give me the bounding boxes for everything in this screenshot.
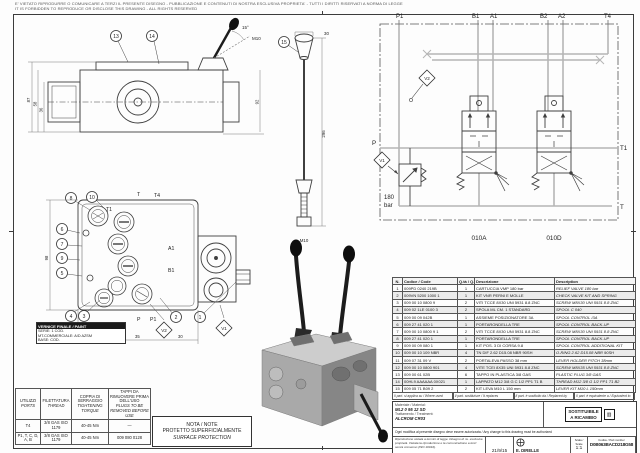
drawing-number: D0B063BACD218G58 bbox=[588, 442, 635, 447]
section-label-010D: 010D bbox=[546, 235, 562, 242]
torque-cell: P1, T, C, D, A, B bbox=[16, 432, 41, 444]
svg-text:8: 8 bbox=[70, 196, 73, 202]
svg-text:V1: V1 bbox=[221, 326, 227, 331]
parts-cell: 1 bbox=[458, 321, 475, 328]
parts-cell: 009PD 0240 219B bbox=[403, 285, 458, 292]
parts-cell: 009 00 10 0800 9 1 bbox=[403, 328, 458, 335]
front-tag-v1: V1 bbox=[216, 320, 232, 336]
parts-cell: KIT LEVA M10 L 150 mm bbox=[475, 385, 555, 392]
parts-table-footer: Il part. si applica su / Where usedIl pa… bbox=[392, 393, 635, 400]
parts-cell: SCREW M8X35 UNI 5931 8.8 ZNC bbox=[555, 364, 636, 371]
parts-cell: 2 bbox=[393, 292, 403, 299]
frame-tick-left bbox=[9, 231, 14, 232]
parts-cell: 11 bbox=[393, 357, 403, 364]
torque-header-thread: FILETTATURATHREAD bbox=[41, 389, 72, 420]
torque-header-row: UTILIZZIPORTS FILETTATURATHREAD COPPIA D… bbox=[16, 389, 151, 420]
parts-cell: SCREW M8X30 UNI 5931 8.8 ZNC bbox=[555, 328, 636, 335]
port-a1: A1 bbox=[490, 14, 498, 20]
scale-value: 1:1 bbox=[571, 446, 587, 451]
pictorial-3d-view bbox=[246, 234, 396, 452]
parts-cell: LEVER HOLDER PITCH 38mm bbox=[555, 357, 636, 364]
parts-cell: 8 bbox=[393, 335, 403, 342]
stamp-line-1: SOSTITUIBILE bbox=[568, 409, 598, 414]
parts-cell: SPOOL C 040 bbox=[555, 306, 636, 313]
parts-cell: THREAD M12 3/8 G 1/2 PP1 T1 B2 bbox=[555, 378, 636, 385]
company-logo-icon bbox=[516, 438, 525, 448]
schematic-gray-buses bbox=[380, 50, 618, 206]
dim-35: 35 bbox=[135, 334, 140, 339]
parts-cell: 4 bbox=[393, 306, 403, 313]
paint-box-line-3: BASE: COD. bbox=[37, 338, 125, 343]
parts-row: 6009 27 41 020 11PORTARONDELLA TRESPOOL … bbox=[393, 321, 636, 328]
spool-section-010A bbox=[457, 96, 509, 191]
svg-text:V1: V1 bbox=[379, 158, 385, 163]
front-port-p: P bbox=[137, 317, 141, 323]
parts-cell: 15 bbox=[393, 385, 403, 392]
paint-note-box: VERNICE FINALE / PAINT SERIE: 1 COD. MT.… bbox=[36, 322, 126, 344]
parts-row: 9009 00 09 080 11KIT POS. 3 DI CORSA 9.8… bbox=[393, 342, 636, 349]
treatment-value: ALCROM CR03 bbox=[395, 416, 541, 421]
balloon-3: 3 bbox=[79, 311, 90, 322]
parts-row: 5009 00 09 042B1ASSIEME POSIZIONATORE 3A… bbox=[393, 313, 636, 320]
parts-cell: 009 00 10 109 NBR bbox=[403, 349, 458, 356]
parts-cell: SPOOL CONTROL ADDITIONAL KIT bbox=[555, 342, 636, 349]
parts-cell: LEVER KIT M10 L 150mm bbox=[555, 385, 636, 392]
svg-text:4: 4 bbox=[70, 314, 73, 320]
note-line-en: SURFACE PROTECTION bbox=[173, 435, 231, 442]
parts-cell: 009 00 09 042B bbox=[403, 313, 458, 320]
parts-cell: 1 bbox=[458, 335, 475, 342]
release-date: 21/9/15 bbox=[486, 437, 514, 453]
parts-cell: 2 bbox=[458, 306, 475, 313]
parts-cell: 5 bbox=[393, 313, 403, 320]
scale-label: Scala / Scale bbox=[571, 438, 587, 446]
parts-row: 4009 02 1LE 0100 32SPOLA ML CM. 1 STANDA… bbox=[393, 306, 636, 313]
balloon-10: 10 bbox=[87, 192, 98, 203]
parts-cell: VITE TCEI 8X35 UNI 5931 8.8 ZNC bbox=[475, 364, 555, 371]
svg-text:7: 7 bbox=[61, 242, 64, 248]
parts-cell: LAPPATO M12 3/8 G C 1/2 PP1 T1 B bbox=[475, 378, 555, 385]
spare-stamp-cell: SOSTITUIBILE A RICAMBIO ▥ bbox=[543, 402, 636, 427]
torque-cell: 40-45 Nm bbox=[72, 432, 109, 444]
svg-text:10: 10 bbox=[89, 195, 95, 201]
parts-footer-cell: Il part. sostituisce / It replaces bbox=[453, 393, 514, 400]
scale-cell: Scala / Scale 1:1 bbox=[571, 437, 588, 453]
parts-cell: 1 bbox=[458, 342, 475, 349]
parts-row: 11009 07 31 09 V2PORTALEVA PASSO 38 mmLE… bbox=[393, 357, 636, 364]
side-thread-label: M10 bbox=[252, 36, 261, 41]
parts-row: 10009 00 10 109 NBR4TN DIF 2.62 D15.08 N… bbox=[393, 349, 636, 356]
property-note: Riproduzione vietata a termini di legge.… bbox=[393, 437, 486, 453]
parts-cell: RELIEF VALVE 180 bar bbox=[555, 285, 636, 292]
dim-58: 58 bbox=[33, 101, 38, 106]
port-torque-table: UTILIZZIPORTS FILETTATURATHREAD COPPIA D… bbox=[15, 388, 151, 445]
parts-cell: 4 bbox=[458, 364, 475, 371]
drawing-number-cell: Codice / Part number D0B063BACD218G58 bbox=[588, 437, 636, 453]
torque-cell: 3/8 GAS ISO 1179 bbox=[41, 420, 72, 432]
parts-row: 13009 00 61 02B6TAPPO IN PLASTICA 3/8 GA… bbox=[393, 371, 636, 378]
parts-cell: 2 bbox=[458, 328, 475, 335]
port-p1: P1 bbox=[396, 14, 404, 20]
parts-cell: 009 00 61 02B bbox=[403, 371, 458, 378]
dim-30: 30 bbox=[324, 31, 329, 36]
relief-unit: bar bbox=[384, 203, 393, 209]
parts-header-desc-it: Descrizione bbox=[475, 278, 555, 285]
torque-row: P1, T, C, D, A, B3/8 GAS ISO 117940-45 N… bbox=[16, 432, 151, 444]
parts-cell: 00HL9 AAAAAA 0X021 bbox=[403, 378, 458, 385]
front-port-b1: B1 bbox=[168, 268, 174, 274]
parts-cell: 10 bbox=[393, 349, 403, 356]
dim-296: 296 bbox=[321, 130, 326, 138]
port-b1: B1 bbox=[472, 14, 480, 20]
balloon-5: 5 bbox=[57, 268, 68, 279]
parts-cell: 009 27 41 020 1 bbox=[403, 335, 458, 342]
parts-cell: KIT POS. 3 DI CORSA 9.8 bbox=[475, 342, 555, 349]
parts-cell: 009VN 5200 1000 1 bbox=[403, 292, 458, 299]
parts-cell: 14 bbox=[393, 378, 403, 385]
parts-cell: 009 00 10 0800 901 bbox=[403, 364, 458, 371]
parts-cell: TN DIF 2.62 D15.08 NBR 90SH bbox=[475, 349, 555, 356]
svg-text:V2: V2 bbox=[161, 328, 167, 333]
port-t1: T1 bbox=[620, 145, 628, 152]
hydraulic-schematic: P1 B1 A1 B2 A2 T4 180 bbox=[372, 8, 634, 252]
balloon-14: 14 bbox=[147, 31, 160, 65]
parts-header-row: N. Codice / Code Q.tà / Q.ty Descrizione… bbox=[393, 278, 636, 285]
torque-cell: — bbox=[109, 420, 151, 432]
parts-cell: 1 bbox=[458, 313, 475, 320]
parts-cell: PLASTIC PLUG 3/8 GAS bbox=[555, 371, 636, 378]
dim-92: 92 bbox=[255, 99, 260, 104]
parts-cell: 2 bbox=[458, 357, 475, 364]
parts-row: 3009 00 10 0800 92VITI TCCE 8X30 UNI 593… bbox=[393, 299, 636, 306]
parts-header-n: N. bbox=[393, 278, 403, 285]
lever-detail-view: 296 30 M10 15 bbox=[274, 30, 336, 248]
parts-cell: 1 bbox=[393, 285, 403, 292]
svg-text:2: 2 bbox=[175, 315, 178, 321]
stamp-line-2: A RICAMBIO bbox=[568, 415, 598, 420]
dim-30: 30 bbox=[178, 334, 183, 339]
material-cell: Materiale / Material: ML2 0 95 12 SD Tra… bbox=[393, 402, 543, 427]
torque-row: T43/8 GAS ISO 117940-45 Nm— bbox=[16, 420, 151, 432]
side-view-outline bbox=[48, 58, 239, 132]
parts-cell: PORTALEVA PASSO 38 mm bbox=[475, 357, 555, 364]
front-port-t1: T1 bbox=[106, 207, 112, 213]
port-a2: A2 bbox=[558, 14, 566, 20]
side-view-lever bbox=[214, 16, 250, 58]
spare-stamp: SOSTITUIBILE A RICAMBIO bbox=[565, 407, 601, 421]
parts-cell: 009 00 09 080 1 bbox=[403, 342, 458, 349]
parts-cell: SCREW M8X30 UNI 5931 8.8 ZNC bbox=[555, 299, 636, 306]
parts-row: 7009 00 10 0800 9 12VITI TCCE 8X30 UNI 5… bbox=[393, 328, 636, 335]
svg-text:9: 9 bbox=[61, 256, 64, 262]
right-column: N. Codice / Code Q.tà / Q.ty Descrizione… bbox=[392, 277, 635, 453]
parts-header-qty: Q.tà / Q.ty bbox=[458, 278, 475, 285]
side-view-lever-labels: 15° M10 bbox=[242, 25, 261, 41]
parts-footer-cell: Il part. si applica su / Where used bbox=[392, 393, 453, 400]
torque-header-ports: UTILIZZIPORTS bbox=[16, 389, 41, 420]
parts-cell: VITI TCCE 8X30 UNI 5931 8.8 ZNC bbox=[475, 328, 555, 335]
drafter-cell: E. DIRELLE 17/10/2011 bbox=[514, 437, 571, 453]
parts-cell: KIT VNR PERNI E MOLLE bbox=[475, 292, 555, 299]
parts-cell: PORTARONDELLA TRE bbox=[475, 321, 555, 328]
balloon-8: 8 bbox=[66, 193, 77, 204]
balloon-6: 6 bbox=[57, 224, 68, 235]
relief-valve-symbol bbox=[399, 148, 426, 206]
parts-cell: 009 02 1LE 0100 3 bbox=[403, 306, 458, 313]
parts-cell: CHECK VALVE KIT AND SPRING bbox=[555, 292, 636, 299]
front-port-t4: T4 bbox=[154, 193, 160, 199]
parts-row: 15009 05 71 B09 22KIT LEVA M10 L 150 mmL… bbox=[393, 385, 636, 392]
front-port-t: T bbox=[137, 192, 141, 198]
balloon-13: 13 bbox=[111, 31, 129, 63]
balloon-4: 4 bbox=[66, 311, 77, 322]
pictorial-levers bbox=[290, 240, 355, 349]
port-t: T bbox=[620, 204, 624, 211]
parts-cell: 2 bbox=[458, 385, 475, 392]
spool-section-010D bbox=[532, 96, 584, 191]
svg-text:V2: V2 bbox=[424, 76, 430, 81]
parts-cell: 009 00 10 0800 9 bbox=[403, 299, 458, 306]
front-view-balloons: 8 10 6 7 9 5 4 3 2 1 bbox=[57, 192, 206, 323]
parts-cell: 7 bbox=[393, 328, 403, 335]
pictorial-side-lever bbox=[354, 384, 388, 443]
parts-header-desc-en: Description bbox=[555, 278, 636, 285]
front-view-ports bbox=[83, 206, 152, 307]
parts-header-code: Codice / Code bbox=[403, 278, 458, 285]
parts-cell: 1 bbox=[458, 378, 475, 385]
svg-text:14: 14 bbox=[149, 34, 155, 40]
balloon-1: 1 bbox=[195, 312, 206, 323]
parts-cell: 6 bbox=[458, 371, 475, 378]
parts-cell: O-RING 2.62 D15.08 NBR 90SH bbox=[555, 349, 636, 356]
dim-98: 98 bbox=[44, 255, 49, 260]
balloon-9: 9 bbox=[57, 253, 68, 264]
tag-v2: V2 bbox=[409, 70, 435, 102]
tag-v1: V1 bbox=[374, 152, 398, 174]
parts-cell: SPOOL CONTROL /3A bbox=[555, 313, 636, 320]
svg-text:3: 3 bbox=[83, 314, 86, 320]
parts-cell: SPOOL CONTROL BACK-UP bbox=[555, 321, 636, 328]
parts-cell: 2 bbox=[458, 299, 475, 306]
section-label-010A: 010A bbox=[472, 235, 488, 242]
front-tag-v2: V2 bbox=[156, 322, 172, 338]
parts-cell: PORTARONDELLA TRE bbox=[475, 335, 555, 342]
parts-list-table: N. Codice / Code Q.tà / Q.ty Descrizione… bbox=[392, 277, 636, 393]
parts-cell: 1 bbox=[458, 285, 475, 292]
relief-value: 180 bbox=[384, 195, 395, 201]
parts-footer-cell: Il part. è equivalente a / Equivalent to bbox=[574, 393, 635, 400]
port-b2: B2 bbox=[540, 14, 548, 20]
parts-cell: 9 bbox=[393, 342, 403, 349]
torque-cell: 009 080 0128 bbox=[109, 432, 151, 444]
parts-cell: 1 bbox=[458, 292, 475, 299]
lever-detail-outline bbox=[295, 34, 313, 226]
dim-36: 36 bbox=[39, 107, 44, 112]
schematic-top-port-labels: P1 B1 A1 B2 A2 T4 bbox=[396, 14, 612, 20]
side-view-dimensions bbox=[28, 62, 264, 134]
parts-row: 1400HL9 AAAAAA 0X0211LAPPATO M12 3/8 G C… bbox=[393, 378, 636, 385]
title-block: Materiale / Material: ML2 0 95 12 SD Tra… bbox=[392, 401, 637, 453]
parts-cell: 3 bbox=[393, 299, 403, 306]
parts-cell: 4 bbox=[458, 349, 475, 356]
dim-87: 87 bbox=[26, 97, 31, 102]
parts-cell: 009 05 71 B09 2 bbox=[403, 385, 458, 392]
parts-table-body: 1009PD 0240 219B1CARTUCCIA VMP 180 barRE… bbox=[393, 285, 636, 393]
side-angle-label: 15° bbox=[242, 25, 249, 30]
surface-protection-note: NOTA / NOTE PROTETTO SUPERFICIALMENTE SU… bbox=[152, 416, 252, 447]
stamp-logo-icon: ▥ bbox=[604, 409, 615, 420]
parts-row: 1009PD 0240 219B1CARTUCCIA VMP 180 barRE… bbox=[393, 285, 636, 292]
parts-cell: 009 07 31 09 V bbox=[403, 357, 458, 364]
port-t4: T4 bbox=[604, 14, 612, 20]
parts-cell: TAPPO IN PLASTICA 3/8 GAS bbox=[475, 371, 555, 378]
frame-tick-top bbox=[322, 11, 323, 15]
front-port-a1: A1 bbox=[168, 246, 174, 252]
svg-text:1: 1 bbox=[199, 315, 202, 321]
svg-text:13: 13 bbox=[113, 34, 119, 40]
parts-footer-cell: Il part. è sostituito da / Replaced by bbox=[514, 393, 575, 400]
parts-cell: SPOLA ML CM. 1 STANDARD bbox=[475, 306, 555, 313]
modification-note: Ogni modifica al presente disegno deve e… bbox=[393, 428, 636, 437]
parts-row: 2009VN 5200 1000 11KIT VNR PERNI E MOLLE… bbox=[393, 292, 636, 299]
parts-cell: 13 bbox=[393, 371, 403, 378]
parts-cell: 6 bbox=[393, 321, 403, 328]
side-elevation-view: 15° M10 13 14 87 58 36 92 bbox=[18, 20, 268, 152]
schematic-section-labels: 010A 010D bbox=[472, 235, 562, 242]
svg-text:5: 5 bbox=[61, 271, 64, 277]
balloon-7: 7 bbox=[57, 239, 68, 250]
relief-setting-label: 180 bar bbox=[384, 195, 395, 209]
drawing-sheet: E' VIETATO RIPRODURRE O COMUNICARE A TER… bbox=[0, 0, 640, 453]
parts-cell: CARTUCCIA VMP 180 bar bbox=[475, 285, 555, 292]
front-port-p1: P1 bbox=[150, 317, 156, 323]
parts-cell: VITI TCCE 8X30 UNI 5931 8.8 ZNC bbox=[475, 299, 555, 306]
port-p: P bbox=[372, 140, 376, 147]
torque-table-body: T43/8 GAS ISO 117940-45 Nm—P1, T, C, D, … bbox=[16, 420, 151, 445]
svg-text:15: 15 bbox=[281, 40, 287, 46]
svg-text:6: 6 bbox=[61, 227, 64, 233]
parts-row: 12009 00 10 0800 9014VITE TCEI 8X35 UNI … bbox=[393, 364, 636, 371]
torque-header-plugs: TAPPI DA RIMUOVERE PRIMA DELL'USOPLUGS T… bbox=[109, 389, 151, 420]
parts-row: 8009 27 41 020 11PORTARONDELLA TRESPOOL … bbox=[393, 335, 636, 342]
parts-cell: 009 27 41 020 1 bbox=[403, 321, 458, 328]
parts-cell: SPOOL CONTROL BACK-UP bbox=[555, 335, 636, 342]
balloon-2: 2 bbox=[171, 312, 182, 323]
parts-cell: 12 bbox=[393, 364, 403, 371]
parts-cell: ASSIEME POSIZIONATORE 3A bbox=[475, 313, 555, 320]
torque-header-torque: COPPIA DI SERRAGGIOTIGHTENING TORQUE bbox=[72, 389, 109, 420]
torque-cell: 40-45 Nm bbox=[72, 420, 109, 432]
side-view-dim-texts: 87 58 36 92 bbox=[26, 97, 260, 112]
torque-cell: T4 bbox=[16, 420, 41, 432]
torque-cell: 3/8 GAS ISO 1179 bbox=[41, 432, 72, 444]
lever-detail-dimlines bbox=[295, 32, 326, 226]
